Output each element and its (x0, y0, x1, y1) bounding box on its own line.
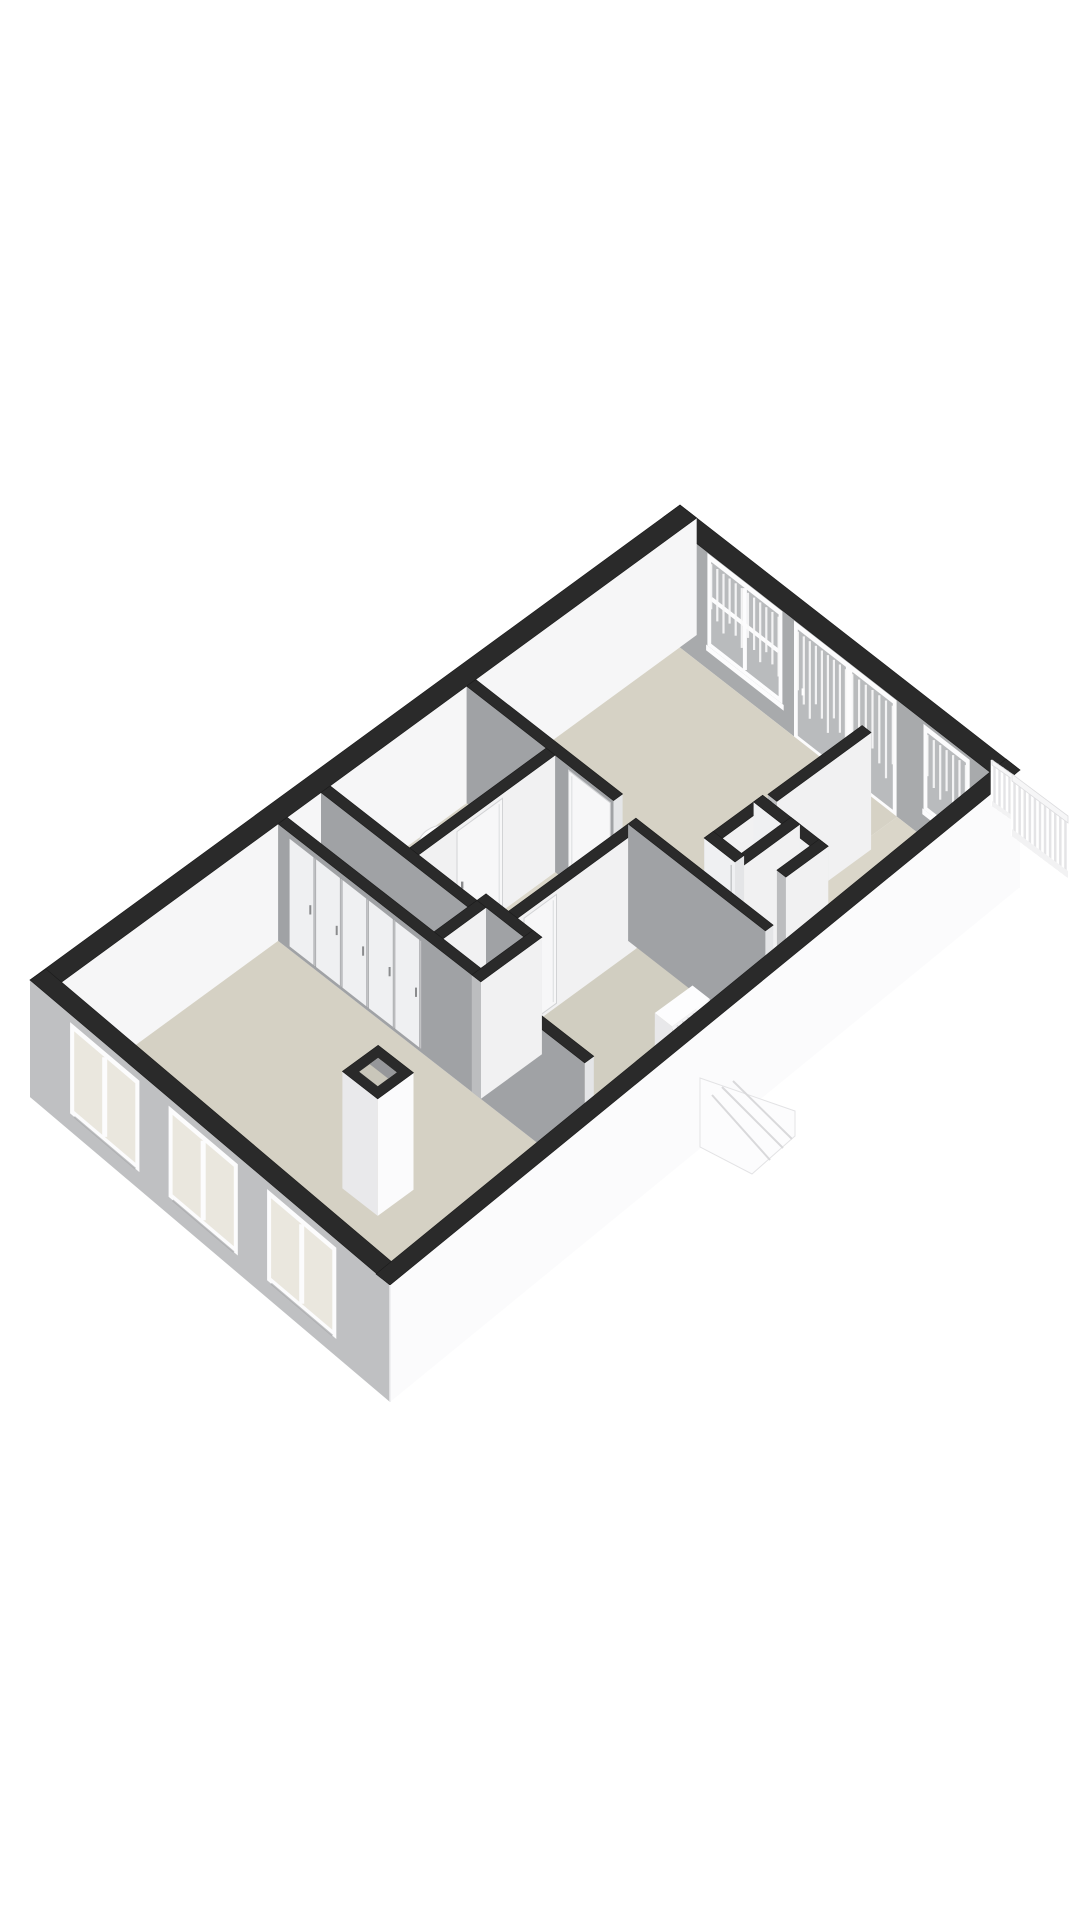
floor-plan-canvas (0, 0, 1080, 1920)
floor-plan-3d-svg (0, 0, 1080, 1920)
chimney (342, 1045, 413, 1216)
balcony-railing (1012, 774, 1068, 878)
